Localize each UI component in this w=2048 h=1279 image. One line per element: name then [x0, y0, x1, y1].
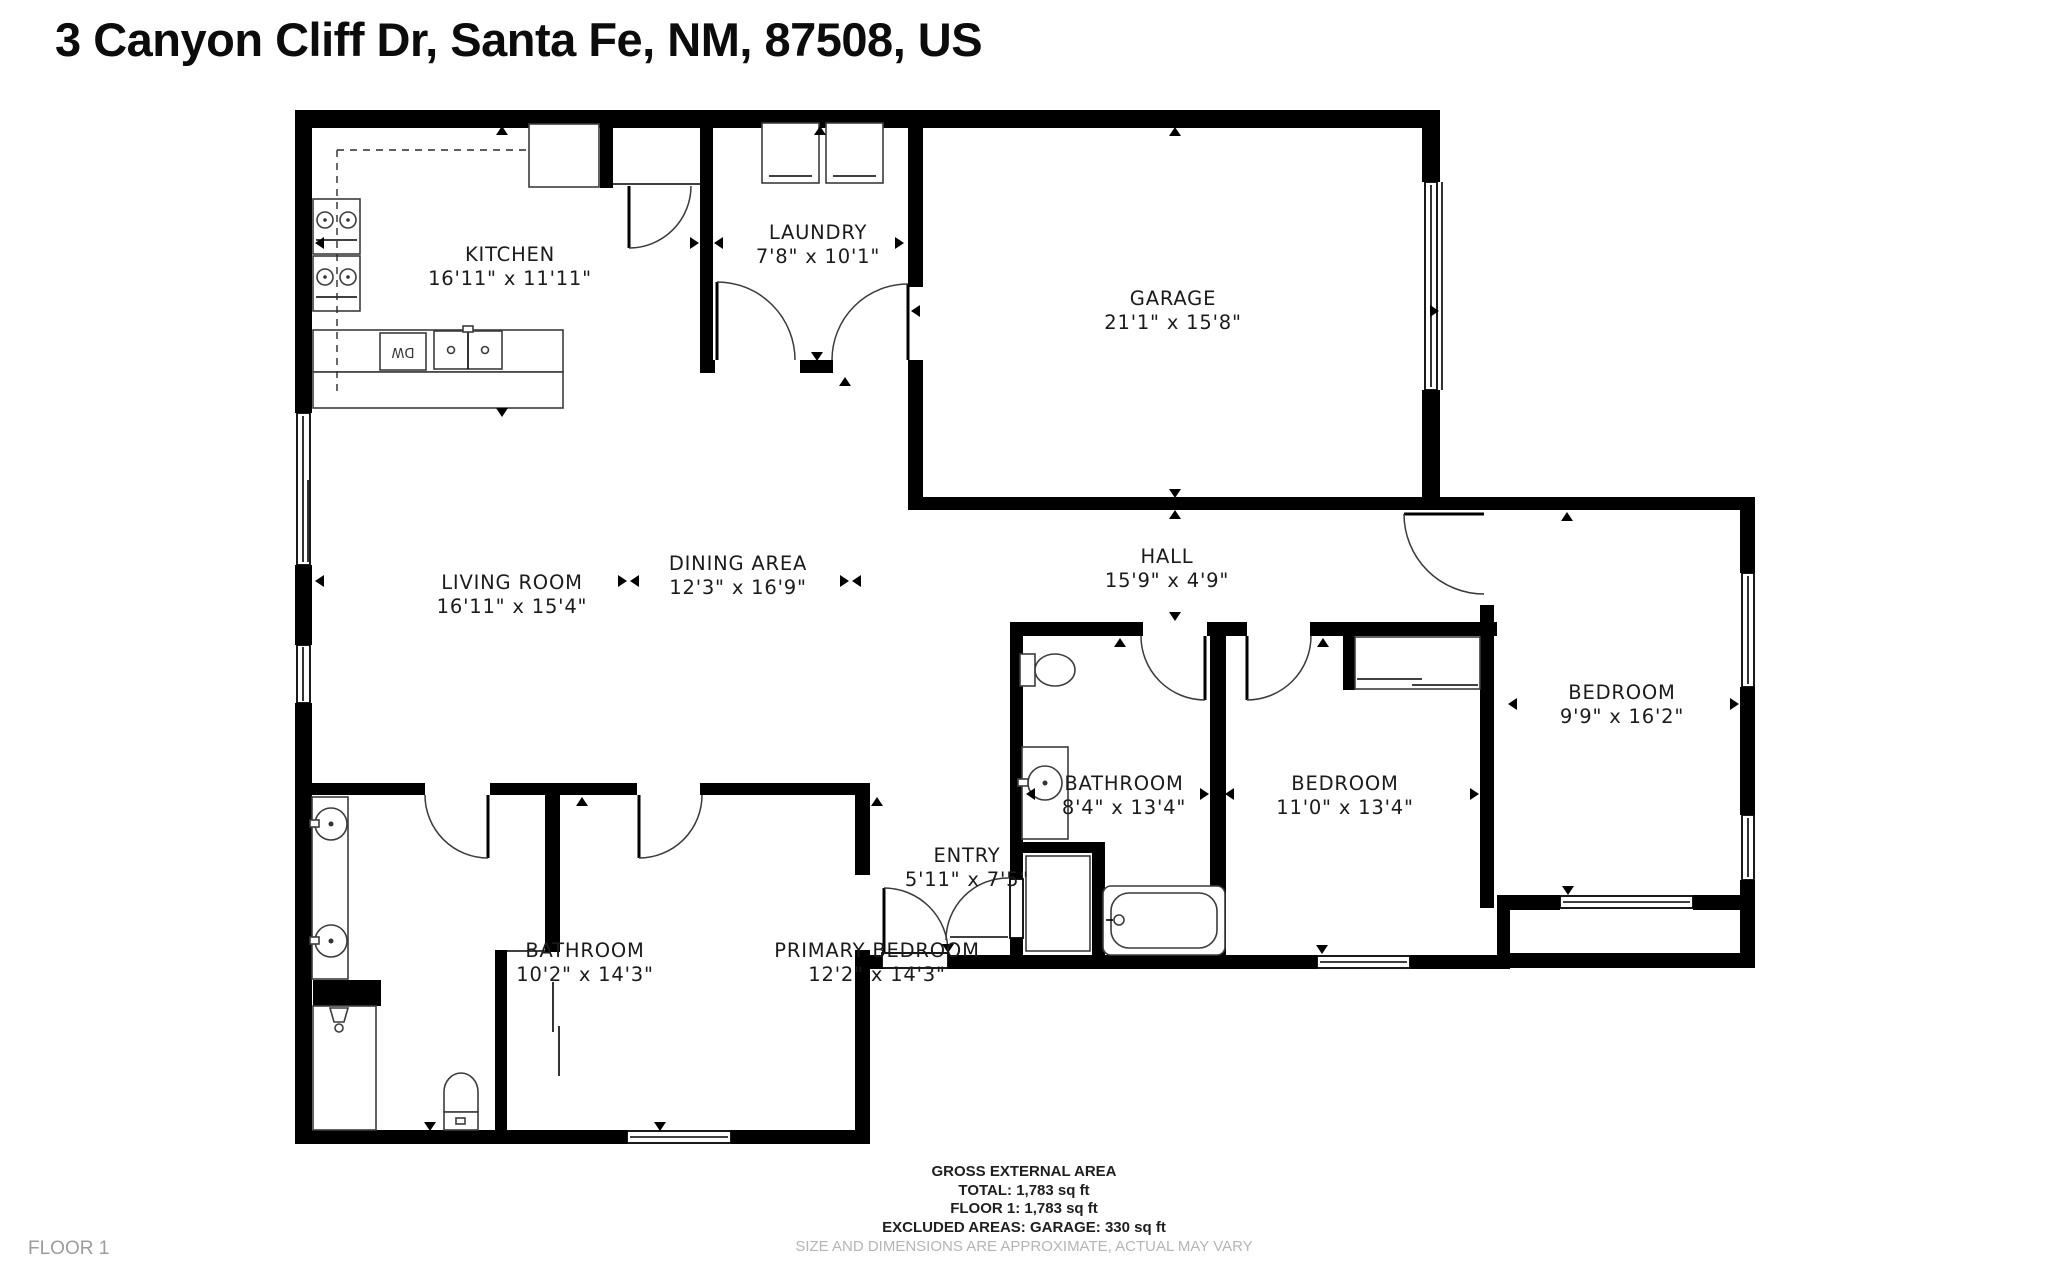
hall-bedroom-door [1247, 636, 1311, 700]
sliding-door-window [297, 413, 310, 565]
room-dims-bedroom-middle: 11'0" x 13'4" [1276, 796, 1413, 819]
gross-area-heading: GROSS EXTERNAL AREA [0, 1163, 2048, 1182]
room-dims-kitchen: 16'11" x 11'11" [428, 267, 592, 290]
excluded-areas: EXCLUDED AREAS: GARAGE: 330 sq ft [0, 1219, 2048, 1238]
area-summary: GROSS EXTERNAL AREA TOTAL: 1,783 sq ft F… [0, 1163, 2048, 1257]
shower-icon [313, 1006, 376, 1130]
room-label-living-room: LIVING ROOM [441, 571, 582, 594]
room-dims-primary-bedroom: 12'2" x 14'3" [808, 963, 945, 986]
pantry-door [629, 186, 691, 248]
bathtub-icon [1103, 886, 1225, 955]
room-dims-hall: 15'9" x 4'9" [1105, 569, 1229, 592]
laundry-door-right [832, 284, 908, 360]
linen-closet [1026, 856, 1090, 951]
floor-plan-page: 3 Canyon Cliff Dr, Santa Fe, NM, 87508, … [0, 0, 2048, 1279]
window [1742, 573, 1754, 687]
room-dims-living-room: 16'11" x 15'4" [437, 595, 588, 618]
dryer-icon [826, 123, 883, 183]
room-dims-dining-area: 12'3" x 16'9" [669, 576, 806, 599]
kitchen-sink-icon [434, 326, 502, 369]
window [297, 645, 310, 703]
floor-number-label: FLOOR 1 [28, 1238, 109, 1260]
room-label-bedroom-right: BEDROOM [1568, 681, 1675, 704]
bedroom-right-door [1404, 514, 1484, 594]
room-dims-bathroom-middle: 8'4" x 13'4" [1062, 796, 1186, 819]
primary-bedroom-door [639, 795, 702, 858]
window [627, 1131, 731, 1143]
room-label-bathroom-middle: BATHROOM [1064, 772, 1183, 795]
closet-slider [1355, 637, 1480, 689]
room-label-dining-area: DINING AREA [669, 552, 807, 575]
window [1742, 815, 1754, 880]
room-label-garage: GARAGE [1130, 287, 1216, 310]
room-label-kitchen: KITCHEN [465, 243, 555, 266]
refrigerator-icon [529, 124, 599, 187]
bathroom-left-door [425, 795, 488, 858]
room-dims-bedroom-right: 9'9" x 16'2" [1560, 705, 1684, 728]
hall-bathroom-door [1141, 636, 1205, 700]
laundry-door-left [717, 282, 795, 360]
room-dims-garage: 21'1" x 15'8" [1104, 311, 1241, 334]
vanity-sink-icon [1018, 747, 1068, 839]
garage-door [1425, 182, 1442, 390]
room-label-entry: ENTRY [933, 844, 1000, 867]
window [1560, 896, 1693, 908]
room-dims-entry: 5'11" x 7'5" [905, 868, 1029, 891]
double-vanity-icon [310, 797, 348, 979]
room-label-hall: HALL [1141, 545, 1194, 568]
floor-plan: KITCHEN 16'11" x 11'11" LAUNDRY 7'8" x 1… [0, 0, 2048, 1279]
room-label-primary-bedroom: PRIMARY BEDROOM [774, 939, 979, 962]
toilet-icon [444, 1073, 478, 1130]
dishwasher-label: DW [391, 344, 414, 359]
total-area: TOTAL: 1,783 sq ft [0, 1182, 2048, 1201]
doors [425, 186, 1484, 952]
toilet-icon [1020, 654, 1075, 686]
window [1317, 956, 1410, 968]
room-label-laundry: LAUNDRY [769, 221, 867, 244]
room-label-bathroom-left: BATHROOM [525, 939, 644, 962]
washer-icon [762, 123, 819, 183]
room-label-bedroom-middle: BEDROOM [1291, 772, 1398, 795]
disclaimer: SIZE AND DIMENSIONS ARE APPROXIMATE, ACT… [0, 1237, 2048, 1257]
room-dims-laundry: 7'8" x 10'1" [756, 245, 880, 268]
floor1-area: FLOOR 1: 1,783 sq ft [0, 1200, 2048, 1219]
room-dims-bathroom-left: 10'2" x 14'3" [516, 963, 653, 986]
